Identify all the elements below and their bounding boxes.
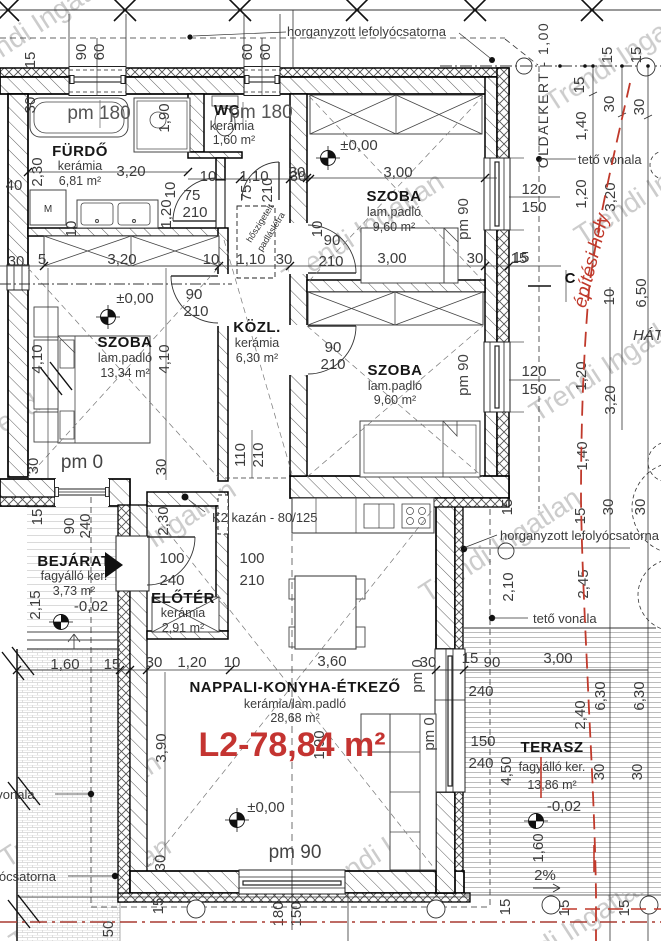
svg-text:30: 30 — [467, 250, 484, 267]
svg-text:kerámia: kerámia — [161, 606, 206, 620]
svg-text:HÁTSÓ: HÁTSÓ — [633, 327, 661, 344]
svg-text:2,15: 2,15 — [27, 590, 44, 619]
svg-text:15: 15 — [599, 47, 616, 64]
svg-text:30: 30 — [631, 99, 648, 116]
svg-text:240: 240 — [77, 513, 94, 538]
svg-text:3,73 m²: 3,73 m² — [53, 584, 95, 598]
svg-text:6,30: 6,30 — [592, 681, 609, 710]
svg-text:lam.padló: lam.padló — [367, 205, 421, 219]
svg-text:15: 15 — [22, 52, 39, 69]
svg-text:pm 0: pm 0 — [421, 717, 438, 750]
svg-text:lam.padló: lam.padló — [368, 379, 422, 393]
svg-text:10: 10 — [200, 168, 217, 185]
svg-text:3,90: 3,90 — [153, 733, 170, 762]
svg-text:9,60 m²: 9,60 m² — [374, 393, 416, 407]
svg-text:90: 90 — [61, 518, 78, 535]
svg-text:210: 210 — [318, 253, 343, 270]
svg-text:90: 90 — [186, 286, 203, 303]
svg-text:100: 100 — [159, 550, 184, 567]
svg-text:15: 15 — [499, 499, 516, 516]
svg-text:-0,02: -0,02 — [74, 598, 108, 615]
svg-text:50: 50 — [100, 921, 117, 938]
svg-text:30: 30 — [153, 459, 170, 476]
svg-text:15: 15 — [462, 650, 479, 667]
svg-text:4,10: 4,10 — [156, 344, 173, 373]
svg-text:30: 30 — [632, 499, 649, 516]
svg-text:150: 150 — [521, 381, 546, 398]
svg-text:K2 kazán - 80/125: K2 kazán - 80/125 — [212, 510, 318, 525]
svg-text:1,60 m²: 1,60 m² — [213, 133, 255, 147]
svg-text:75: 75 — [238, 185, 255, 202]
svg-text:1,40: 1,40 — [574, 441, 591, 470]
svg-text:3,00: 3,00 — [377, 250, 406, 267]
svg-text:15: 15 — [497, 899, 514, 916]
svg-text:pm 90: pm 90 — [269, 842, 322, 863]
svg-text:15: 15 — [616, 900, 633, 917]
svg-text:60: 60 — [257, 44, 274, 61]
svg-text:10: 10 — [162, 182, 179, 199]
svg-text:pm 180: pm 180 — [229, 102, 292, 123]
svg-text:-0,02: -0,02 — [547, 798, 581, 815]
svg-text:lam.padló: lam.padló — [98, 351, 152, 365]
svg-text:fagyálló ker.: fagyálló ker. — [41, 569, 108, 583]
svg-text:210: 210 — [239, 572, 264, 589]
svg-text:6,30: 6,30 — [631, 681, 648, 710]
svg-text:2,91 m²: 2,91 m² — [162, 621, 204, 635]
svg-text:5: 5 — [38, 251, 46, 268]
svg-text:30: 30 — [276, 251, 293, 268]
svg-text:10: 10 — [63, 221, 80, 238]
svg-text:240: 240 — [159, 572, 184, 589]
svg-text:3,20: 3,20 — [602, 385, 619, 414]
svg-text:1,90: 1,90 — [156, 103, 173, 132]
svg-text:pm 90: pm 90 — [455, 198, 472, 240]
svg-text:1,20: 1,20 — [158, 199, 175, 228]
svg-text:FÜRDŐ: FÜRDŐ — [52, 142, 108, 160]
svg-text:SZOBA: SZOBA — [368, 362, 423, 379]
svg-text:4,50: 4,50 — [498, 756, 515, 785]
svg-text:15: 15 — [556, 900, 573, 917]
svg-text:SZOBA: SZOBA — [367, 188, 422, 205]
svg-text:9,60 m²: 9,60 m² — [373, 220, 415, 234]
svg-text:240: 240 — [468, 755, 493, 772]
svg-text:90: 90 — [325, 339, 342, 356]
svg-text:NAPPALI-KONYHA-ÉTKEZŐ: NAPPALI-KONYHA-ÉTKEZŐ — [189, 678, 400, 696]
svg-text:15: 15 — [571, 77, 588, 94]
svg-text:100: 100 — [239, 550, 264, 567]
svg-text:1,20: 1,20 — [573, 179, 590, 208]
svg-text:75: 75 — [184, 187, 201, 204]
svg-text:3,00: 3,00 — [543, 650, 572, 667]
svg-text:2,30: 2,30 — [29, 157, 46, 186]
svg-text:SZOBA: SZOBA — [98, 334, 153, 351]
svg-text:horganyzott lefolyócsatorna: horganyzott lefolyócsatorna — [0, 869, 57, 884]
svg-text:15: 15 — [150, 898, 167, 915]
svg-text:2,40: 2,40 — [572, 700, 589, 729]
svg-text:10: 10 — [601, 289, 618, 306]
svg-text:OLDALKERT - 1,00: OLDALKERT - 1,00 — [535, 22, 551, 168]
svg-text:TERASZ: TERASZ — [521, 739, 584, 756]
svg-text:30: 30 — [25, 458, 42, 475]
svg-text:30: 30 — [8, 253, 25, 270]
svg-text:4,10: 4,10 — [29, 344, 46, 373]
svg-text:1,20: 1,20 — [177, 654, 206, 671]
svg-text:30: 30 — [600, 499, 617, 516]
svg-text:3,60: 3,60 — [317, 653, 346, 670]
svg-text:1,60: 1,60 — [530, 833, 547, 862]
svg-text:M: M — [44, 204, 52, 215]
svg-text:90: 90 — [324, 232, 341, 249]
svg-text:15: 15 — [513, 249, 530, 266]
svg-text:±0,00: ±0,00 — [340, 137, 377, 154]
svg-text:2,30: 2,30 — [155, 506, 172, 535]
svg-text:2%: 2% — [534, 867, 556, 884]
svg-text:30: 30 — [289, 164, 306, 181]
svg-text:30: 30 — [22, 97, 39, 114]
svg-text:2,10: 2,10 — [500, 572, 517, 601]
svg-text:1,60: 1,60 — [50, 656, 79, 673]
svg-text:15: 15 — [29, 509, 46, 526]
svg-text:120: 120 — [521, 181, 546, 198]
svg-text:kerámia: kerámia — [58, 159, 103, 173]
svg-text:10: 10 — [203, 251, 220, 268]
svg-text:13,86 m²: 13,86 m² — [527, 778, 576, 792]
svg-text:kerámia: kerámia — [235, 336, 280, 350]
svg-text:KÖZL.: KÖZL. — [233, 319, 281, 336]
svg-text:pm 0: pm 0 — [409, 659, 426, 692]
svg-text:pm 0: pm 0 — [61, 452, 103, 473]
svg-text:6,30 m²: 6,30 m² — [236, 351, 278, 365]
svg-text:210: 210 — [250, 442, 267, 467]
svg-text:10: 10 — [224, 654, 241, 671]
svg-text:110: 110 — [232, 443, 249, 467]
svg-text:BEJÁRAT: BEJÁRAT — [37, 553, 110, 570]
svg-text:tető vonala: tető vonala — [533, 611, 597, 626]
svg-text:210: 210 — [320, 356, 345, 373]
svg-text:1,20: 1,20 — [573, 361, 590, 390]
svg-text:ELŐTÉR: ELŐTÉR — [151, 589, 215, 607]
svg-text:3,20: 3,20 — [116, 163, 145, 180]
svg-text:horganyzott lefolyócsatorna: horganyzott lefolyócsatorna — [287, 24, 447, 39]
svg-text:210: 210 — [259, 177, 276, 202]
svg-text:±0,00: ±0,00 — [247, 799, 284, 816]
svg-text:13,34 m²: 13,34 m² — [100, 366, 149, 380]
svg-text:tető vonala: tető vonala — [578, 152, 642, 167]
svg-text:30: 30 — [629, 764, 646, 781]
svg-text:pm 90: pm 90 — [455, 354, 472, 396]
svg-text:210: 210 — [182, 204, 207, 221]
svg-text:90: 90 — [73, 44, 90, 61]
svg-text:3,00: 3,00 — [383, 164, 412, 181]
svg-text:15: 15 — [104, 656, 121, 673]
svg-text:15: 15 — [628, 47, 645, 64]
svg-text:150: 150 — [521, 199, 546, 216]
svg-text:210: 210 — [183, 303, 208, 320]
svg-text:6,81 m²: 6,81 m² — [59, 174, 101, 188]
svg-text:40: 40 — [6, 177, 23, 194]
svg-text:pm 180: pm 180 — [67, 103, 130, 124]
svg-text:horganyzott lefolyócsatorna: horganyzott lefolyócsatorna — [500, 528, 660, 543]
svg-text:30: 30 — [146, 654, 163, 671]
svg-text:60: 60 — [91, 44, 108, 61]
svg-text:240: 240 — [468, 683, 493, 700]
svg-text:1,40: 1,40 — [573, 111, 590, 140]
svg-text:L2-78,84 m²: L2-78,84 m² — [198, 726, 385, 764]
svg-text:3,20: 3,20 — [107, 251, 136, 268]
svg-text:28,68 m²: 28,68 m² — [270, 711, 319, 725]
svg-text:120: 120 — [521, 363, 546, 380]
svg-text:150: 150 — [470, 733, 495, 750]
svg-text:6,50: 6,50 — [633, 278, 650, 307]
svg-text:60: 60 — [239, 44, 256, 61]
svg-text:fagyálló ker.: fagyálló ker. — [519, 760, 586, 774]
svg-text:90: 90 — [484, 654, 501, 671]
svg-text:30: 30 — [601, 96, 618, 113]
svg-text:1,10: 1,10 — [236, 251, 265, 268]
svg-text:30: 30 — [591, 764, 608, 781]
svg-text:kerámia/lam.padló: kerámia/lam.padló — [244, 697, 346, 711]
svg-text:tető vonala: tető vonala — [0, 787, 35, 802]
svg-text:30: 30 — [152, 855, 169, 872]
svg-text:±0,00: ±0,00 — [116, 290, 153, 307]
